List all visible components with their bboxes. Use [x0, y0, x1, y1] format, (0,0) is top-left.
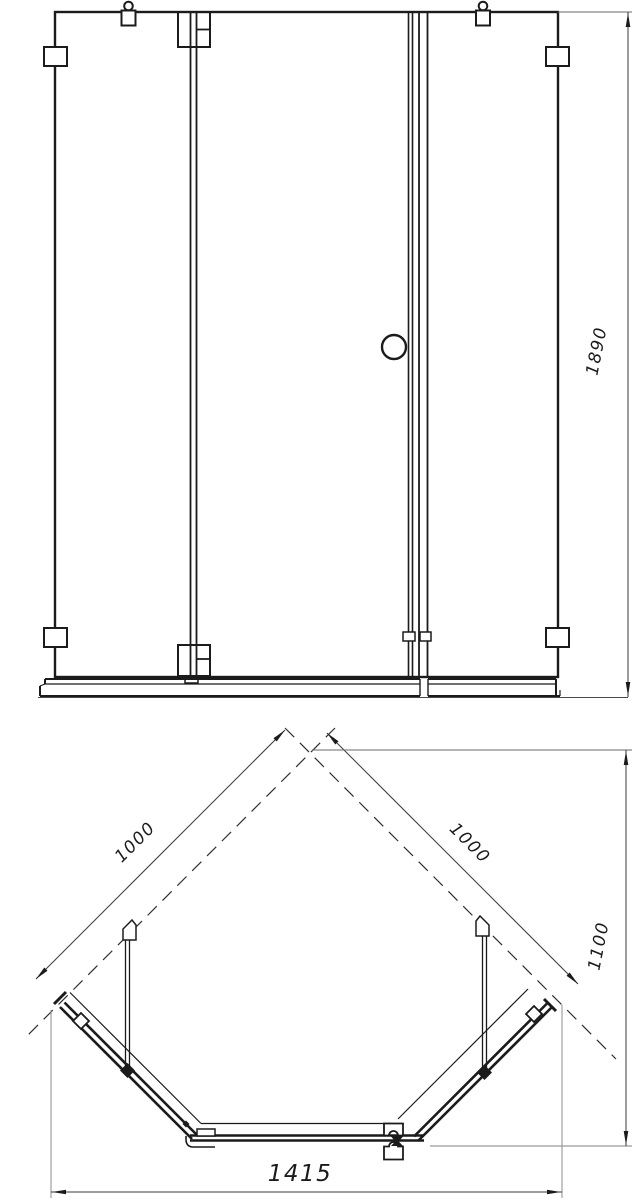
arrowhead-icon [547, 1190, 561, 1195]
support-bar-right [476, 916, 492, 1080]
arrowhead-icon [52, 1190, 66, 1195]
arrowhead-icon [327, 733, 339, 745]
dimension-label-right-side: 1000 [445, 819, 494, 868]
plan-door [183, 1121, 425, 1160]
wall-fitting-icon [123, 920, 136, 940]
wall-bracket-icon [44, 47, 569, 647]
glass-fitting-icon [477, 1065, 492, 1080]
glass-fitting-icon [120, 1063, 135, 1078]
wall-line-dashed [28, 728, 616, 1059]
center-joint-profile [178, 12, 210, 683]
arrowhead-icon [624, 751, 629, 765]
support-bar-left [120, 920, 136, 1078]
ceiling-hook-icon [122, 2, 136, 26]
door-strike-plate [197, 1129, 215, 1136]
dimension-label-depth: 1100 [585, 920, 614, 972]
dimension-label-height: 1890 [583, 325, 612, 377]
technical-drawing-sheet: 1890 [0, 0, 634, 1200]
glass-clamp-icon [73, 1013, 89, 1029]
plan-glass-right [398, 989, 556, 1141]
arrowhead-icon [624, 1131, 629, 1145]
arrowhead-icon [626, 682, 631, 696]
dimension-right-1000 [327, 733, 578, 984]
arrowhead-icon [36, 968, 48, 980]
dimension-left-1000 [36, 730, 285, 979]
wall-fitting-icon [476, 916, 489, 936]
dimension-label-width: 1415 [268, 1161, 333, 1187]
door-handle-icon [382, 335, 406, 359]
door-profile-lines [403, 12, 431, 677]
arrowhead-icon [274, 730, 286, 742]
shower-tray [40, 679, 560, 696]
arrowhead-icon [626, 13, 631, 27]
plan-view [28, 728, 632, 1198]
dimension-label-left-side: 1000 [111, 818, 160, 867]
glass-assembly-outline [55, 12, 558, 677]
ceiling-hook-icon [476, 2, 490, 26]
front-elevation [38, 2, 632, 698]
arrowhead-icon [567, 973, 579, 985]
